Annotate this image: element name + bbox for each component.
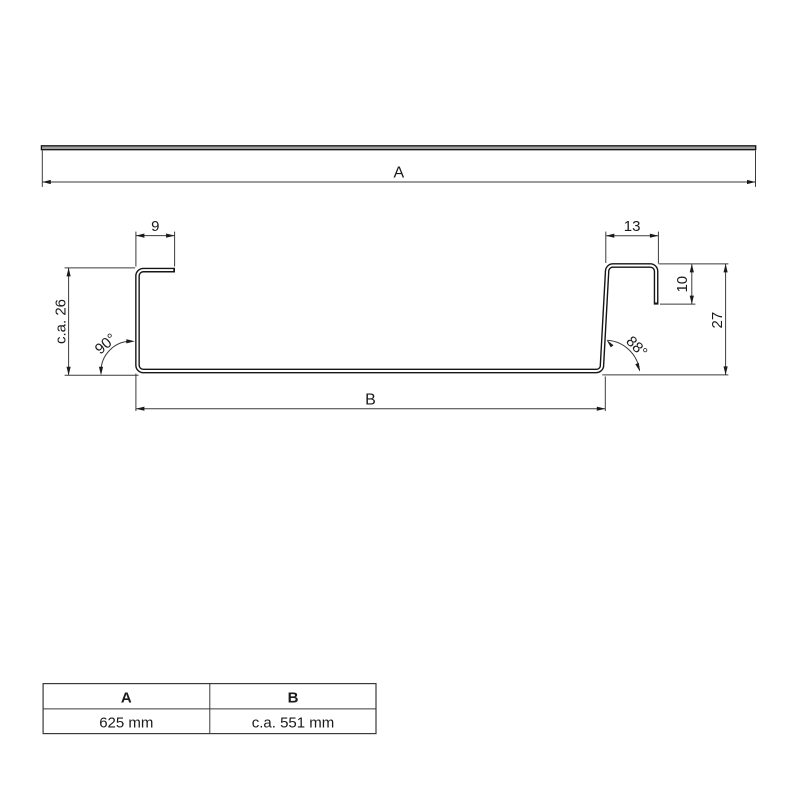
svg-text:A: A: [393, 165, 404, 182]
svg-text:625 mm: 625 mm: [99, 715, 153, 732]
svg-text:A: A: [121, 690, 132, 707]
svg-text:B: B: [288, 690, 299, 707]
svg-text:c.a. 551 mm: c.a. 551 mm: [252, 715, 335, 732]
svg-text:B: B: [365, 392, 376, 409]
svg-text:c.a. 26: c.a. 26: [52, 299, 69, 344]
svg-text:10: 10: [674, 276, 691, 293]
svg-text:9: 9: [151, 218, 159, 235]
svg-text:13: 13: [624, 218, 641, 235]
svg-text:27: 27: [709, 312, 726, 329]
